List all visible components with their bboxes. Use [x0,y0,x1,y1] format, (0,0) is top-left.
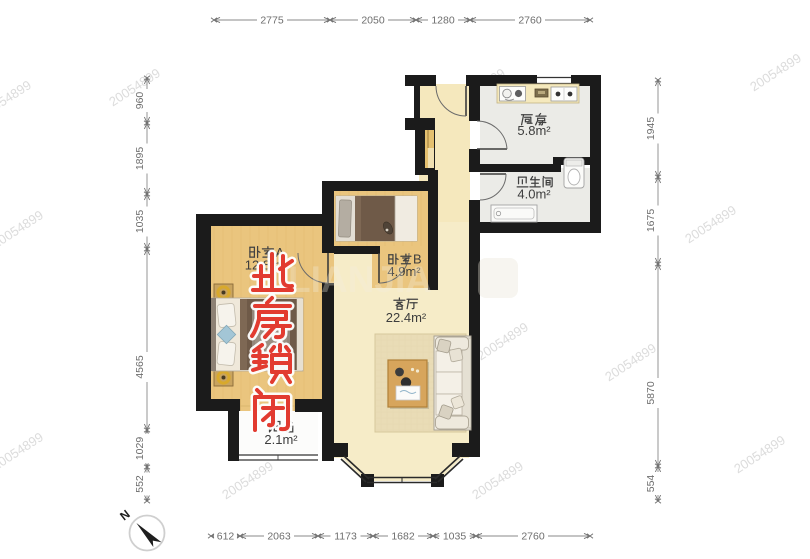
svg-text:1945: 1945 [645,117,657,141]
svg-text:1895: 1895 [134,147,146,171]
svg-text:2.1m²: 2.1m² [264,432,298,447]
svg-text:1029: 1029 [134,437,146,461]
svg-text:2063: 2063 [267,531,291,543]
svg-text:2775: 2775 [260,15,284,27]
svg-text:552: 552 [134,475,146,493]
svg-text:2050: 2050 [361,15,385,27]
svg-text:1682: 1682 [391,531,415,543]
svg-text:2760: 2760 [518,15,542,27]
svg-text:5870: 5870 [645,381,657,405]
svg-text:1280: 1280 [431,15,455,27]
svg-text:5.8m²: 5.8m² [517,123,551,138]
svg-text:960: 960 [134,92,146,110]
svg-text:554: 554 [645,475,657,493]
svg-text:4.0m²: 4.0m² [517,187,551,202]
svg-text:1173: 1173 [334,531,357,543]
svg-text:612: 612 [217,531,235,543]
svg-text:22.4m²: 22.4m² [386,310,427,325]
svg-text:1675: 1675 [645,209,657,233]
svg-text:LIANJIA: LIANJIA [288,259,432,300]
svg-text:2760: 2760 [521,531,545,543]
svg-text:4565: 4565 [134,355,146,379]
svg-text:1035: 1035 [134,210,146,234]
svg-text:1035: 1035 [443,531,467,543]
